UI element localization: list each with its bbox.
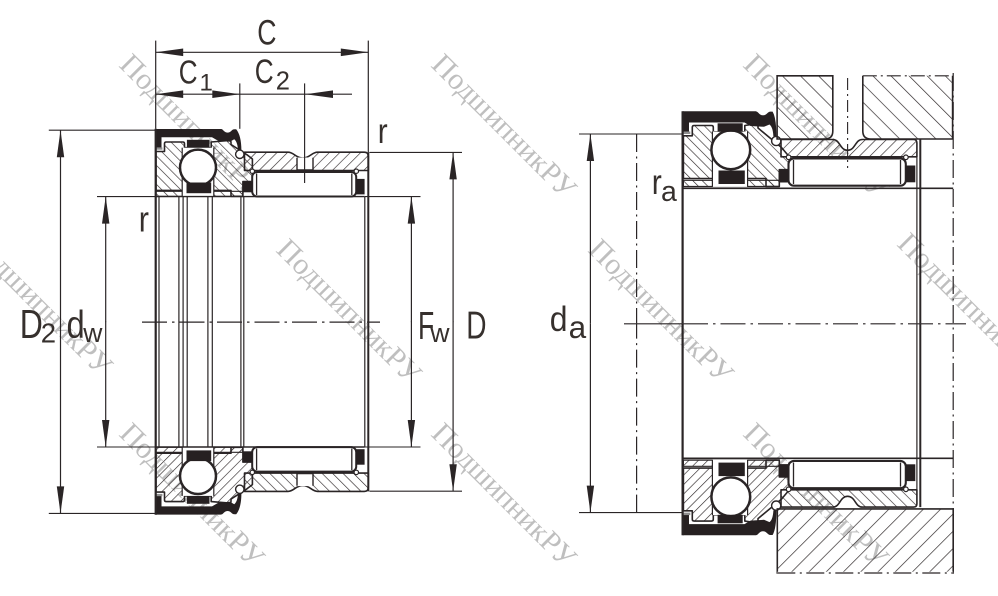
svg-text:2: 2 xyxy=(276,68,290,96)
svg-text:D: D xyxy=(20,301,43,347)
svg-text:a: a xyxy=(661,176,677,208)
svg-text:D: D xyxy=(466,304,486,348)
svg-text:w: w xyxy=(429,318,450,348)
svg-text:d: d xyxy=(550,299,568,339)
svg-text:a: a xyxy=(569,309,587,345)
svg-text:C: C xyxy=(179,54,198,91)
svg-text:r: r xyxy=(139,200,149,240)
svg-text:C: C xyxy=(255,54,274,91)
svg-text:w: w xyxy=(82,318,103,348)
svg-text:C: C xyxy=(257,13,276,53)
svg-text:1: 1 xyxy=(200,70,213,97)
svg-text:r: r xyxy=(378,112,388,151)
svg-text:2: 2 xyxy=(41,317,56,348)
svg-text:d: d xyxy=(67,304,85,347)
